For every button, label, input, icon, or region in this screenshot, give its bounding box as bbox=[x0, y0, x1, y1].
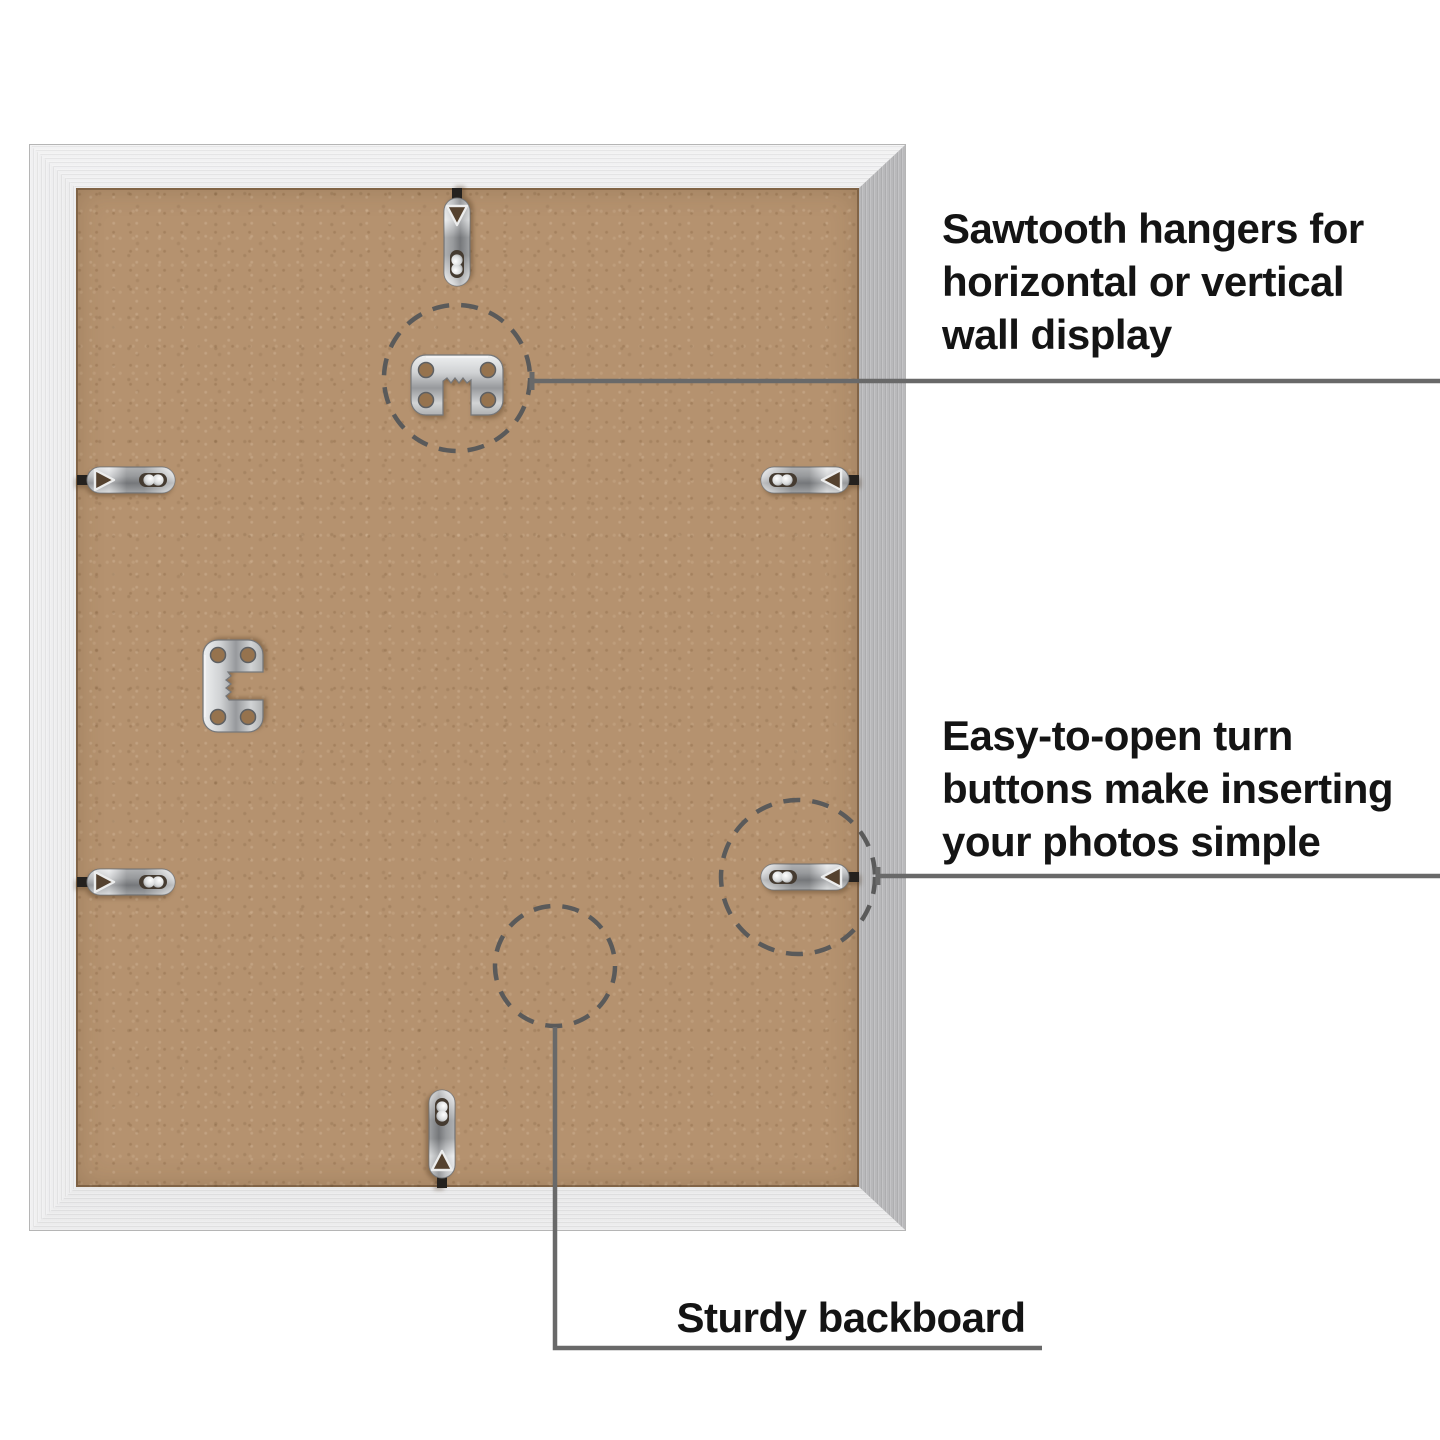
sawtooth-hanger-icon bbox=[201, 638, 265, 734]
sawtooth-hanger-icon bbox=[409, 353, 505, 417]
annotation-line: buttons make inserting bbox=[942, 762, 1393, 815]
annotation-line: your photos simple bbox=[942, 815, 1393, 868]
turn-button-icon bbox=[760, 859, 860, 895]
annotation-line: Sturdy backboard bbox=[651, 1291, 1051, 1344]
product-infographic: Sawtooth hangers for horizontal or verti… bbox=[0, 0, 1440, 1440]
backboard bbox=[76, 188, 859, 1187]
turn-button-icon bbox=[76, 864, 176, 900]
annotation-line: Sawtooth hangers for bbox=[942, 202, 1364, 255]
annotation-line: Easy-to-open turn bbox=[942, 709, 1393, 762]
annotation-line: wall display bbox=[942, 308, 1364, 361]
annotation-backboard: Sturdy backboard bbox=[651, 1291, 1051, 1344]
turn-button-icon bbox=[760, 462, 860, 498]
turn-button-icon bbox=[76, 462, 176, 498]
annotation-sawtooth-hangers: Sawtooth hangers for horizontal or verti… bbox=[942, 202, 1364, 361]
annotation-turn-buttons: Easy-to-open turn buttons make inserting… bbox=[942, 709, 1393, 868]
turn-button-icon bbox=[424, 1089, 460, 1189]
annotation-line: horizontal or vertical bbox=[942, 255, 1364, 308]
turn-button-icon bbox=[439, 187, 475, 287]
picture-frame-back bbox=[30, 145, 905, 1230]
